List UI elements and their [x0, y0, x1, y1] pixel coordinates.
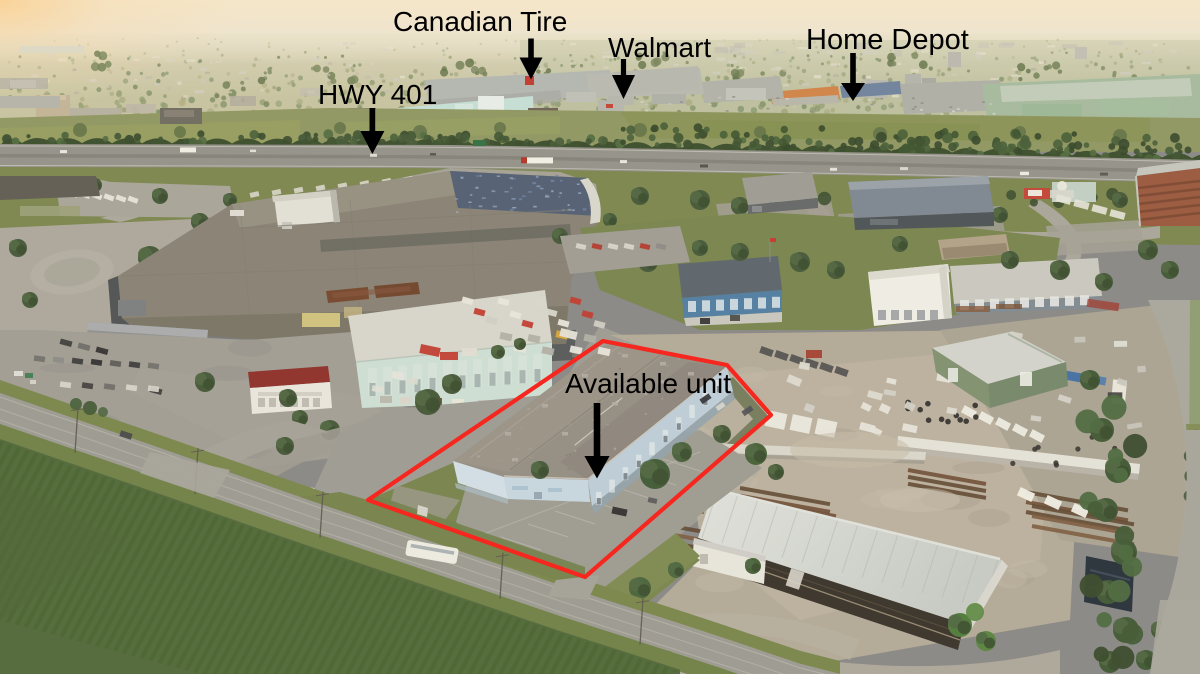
svg-text:Available unit: Available unit — [565, 368, 731, 399]
svg-text:HWY 401: HWY 401 — [318, 79, 437, 110]
svg-text:Walmart: Walmart — [608, 32, 711, 63]
svg-text:Canadian Tire: Canadian Tire — [393, 6, 567, 37]
svg-text:Home Depot: Home Depot — [806, 24, 969, 56]
